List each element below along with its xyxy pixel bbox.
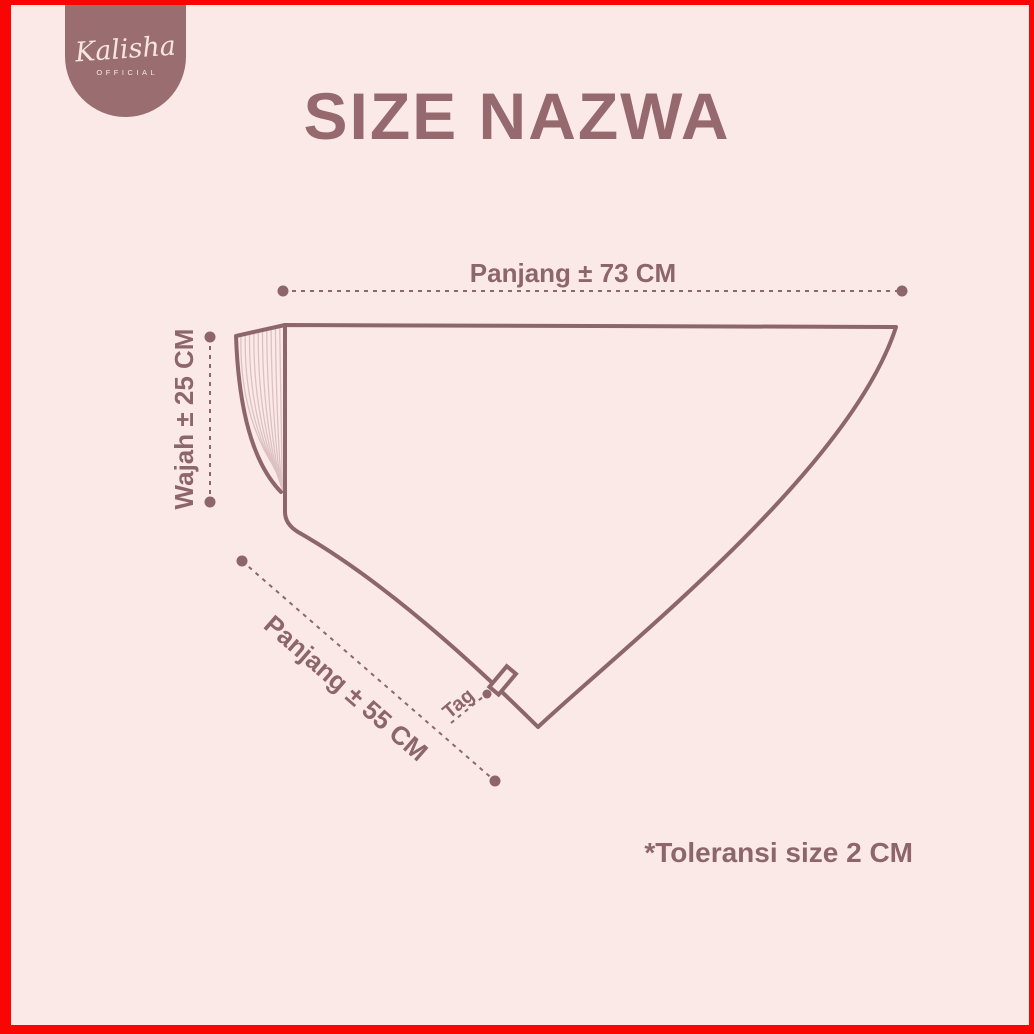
- measure-label-diagonal: Panjang ± 55 CM: [258, 609, 433, 767]
- measure-label-top: Panjang ± 73 CM: [470, 258, 676, 288]
- measure-dot: [205, 497, 216, 508]
- measurement-top: Panjang ± 73 CM: [278, 258, 908, 297]
- size-diagram: Tag Panjang ± 73 CM Wajah ± 25 CM Panjan…: [0, 0, 1034, 1034]
- measure-dot: [237, 556, 248, 567]
- measure-dot: [205, 332, 216, 343]
- tag-icon: [489, 666, 516, 694]
- measure-dot: [897, 286, 908, 297]
- measure-line-diagonal: [242, 561, 495, 781]
- measurement-diagonal: Panjang ± 55 CM: [237, 556, 501, 787]
- measure-dot: [490, 776, 501, 787]
- tolerance-note: *Toleransi size 2 CM: [644, 837, 913, 869]
- brand-name: Kalisha: [64, 31, 187, 69]
- tag-label: Tag: [439, 684, 479, 723]
- measure-dot: [278, 286, 289, 297]
- measurement-left: Wajah ± 25 CM: [169, 329, 216, 510]
- tag-leader-dot: [483, 690, 492, 699]
- hijab-outline: [285, 325, 896, 727]
- brand-subtitle: OFFICIAL: [65, 68, 186, 77]
- poster: Tag Panjang ± 73 CM Wajah ± 25 CM Panjan…: [0, 0, 1034, 1034]
- measure-label-left: Wajah ± 25 CM: [169, 329, 199, 510]
- page-title: SIZE NAZWA: [0, 78, 1034, 154]
